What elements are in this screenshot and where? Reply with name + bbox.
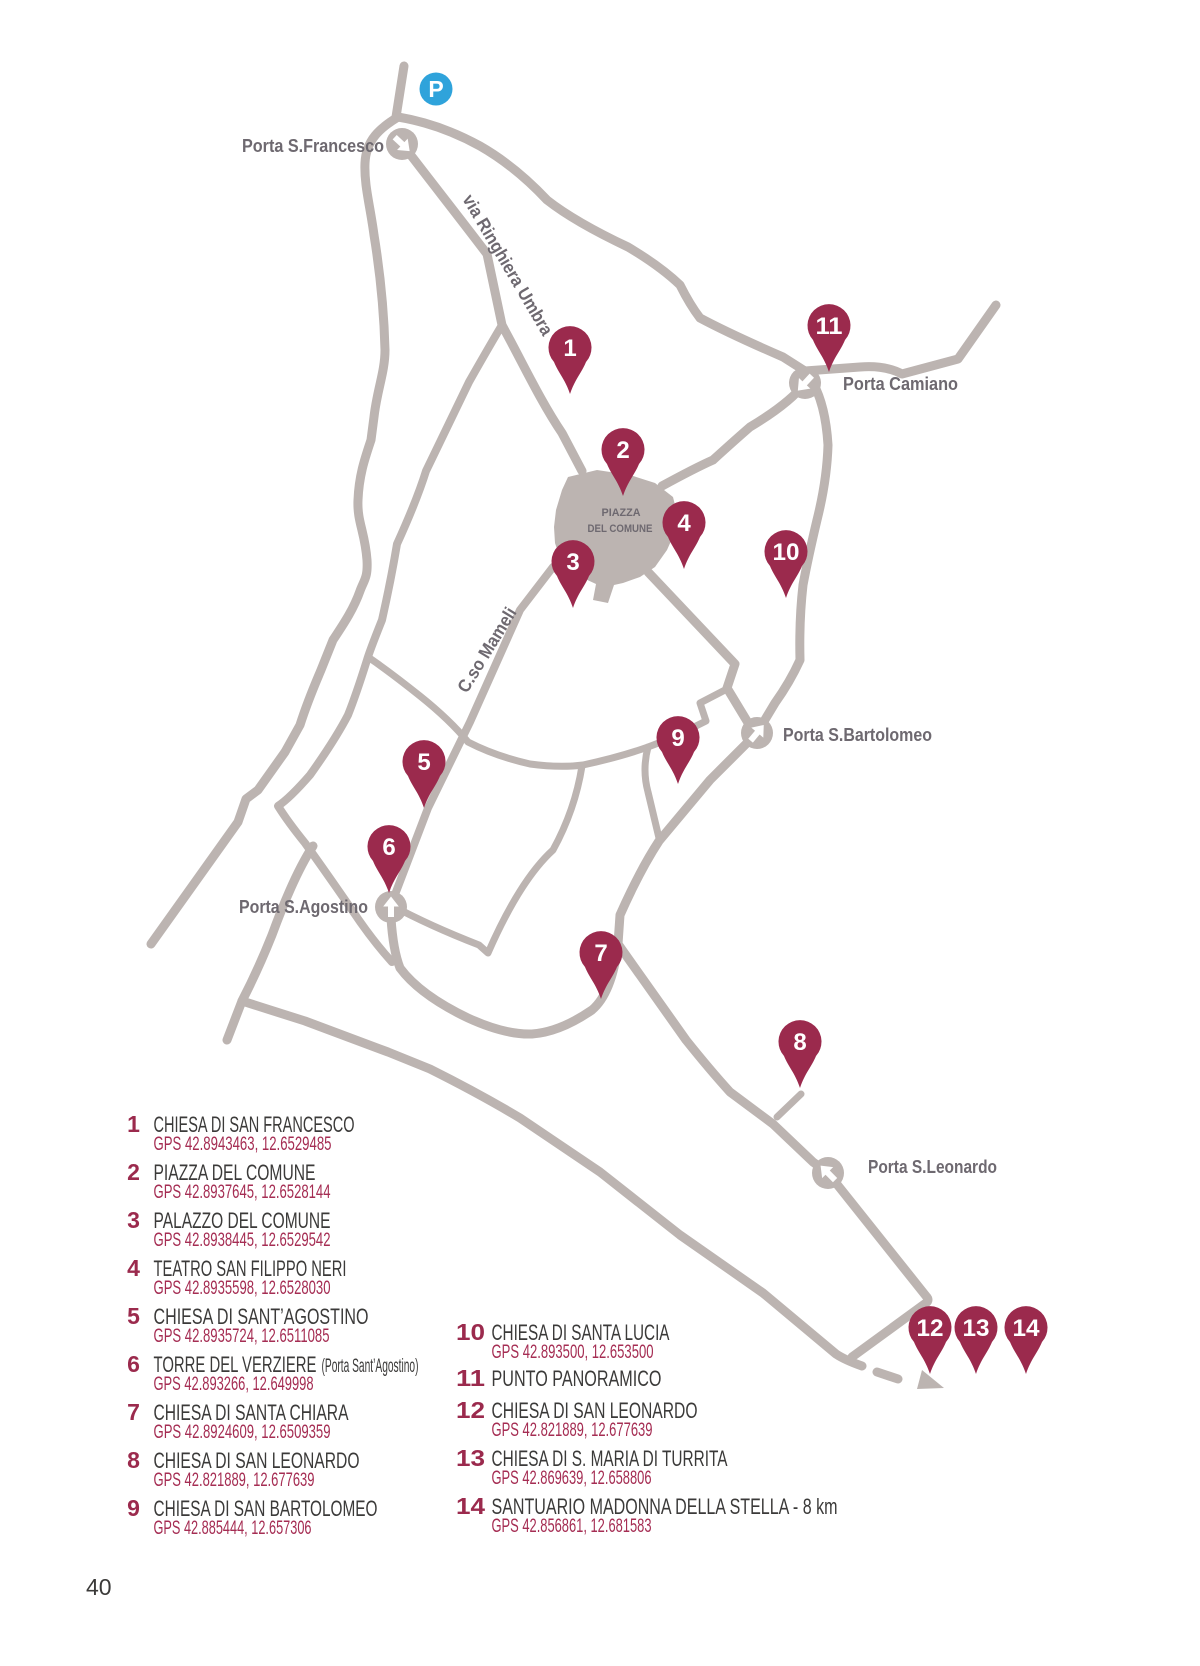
- svg-text:Porta S.Bartolomeo: Porta S.Bartolomeo: [783, 725, 932, 745]
- svg-text:13: 13: [456, 1445, 485, 1471]
- svg-text:40: 40: [86, 1574, 112, 1600]
- svg-text:GPS 42.8935724, 12.6511085: GPS 42.8935724, 12.6511085: [154, 1326, 330, 1347]
- svg-text:GPS 42.869639, 12.658806: GPS 42.869639, 12.658806: [492, 1468, 652, 1489]
- svg-text:8: 8: [793, 1029, 806, 1056]
- svg-text:6: 6: [382, 834, 395, 861]
- svg-text:GPS 42.856861, 12.681583: GPS 42.856861, 12.681583: [492, 1516, 652, 1537]
- svg-text:10: 10: [773, 539, 800, 566]
- svg-text:Porta S.Leonardo: Porta S.Leonardo: [868, 1157, 997, 1177]
- svg-text:11: 11: [816, 313, 843, 340]
- svg-text:GPS 42.893500, 12.653500: GPS 42.893500, 12.653500: [492, 1342, 654, 1363]
- svg-text:1: 1: [563, 335, 576, 362]
- svg-text:PUNTO PANORAMICO: PUNTO PANORAMICO: [492, 1366, 662, 1391]
- svg-text:3: 3: [566, 549, 579, 576]
- svg-text:PIAZZA: PIAZZA: [602, 507, 641, 519]
- svg-text:8: 8: [127, 1447, 140, 1473]
- svg-text:10: 10: [456, 1319, 485, 1345]
- svg-text:GPS 42.8924609, 12.6509359: GPS 42.8924609, 12.6509359: [154, 1422, 331, 1443]
- svg-text:GPS 42.885444, 12.657306: GPS 42.885444, 12.657306: [154, 1518, 312, 1539]
- svg-text:7: 7: [594, 940, 607, 967]
- svg-text:14: 14: [1013, 1315, 1041, 1342]
- svg-text:GPS 42.821889, 12.677639: GPS 42.821889, 12.677639: [492, 1420, 653, 1441]
- svg-text:GPS 42.8943463, 12.6529485: GPS 42.8943463, 12.6529485: [154, 1134, 332, 1155]
- svg-text:GPS 42.8938445, 12.6529542: GPS 42.8938445, 12.6529542: [154, 1230, 331, 1251]
- svg-text:GPS 42.893266, 12.649998: GPS 42.893266, 12.649998: [154, 1374, 314, 1395]
- svg-text:P: P: [428, 76, 443, 102]
- svg-text:13: 13: [963, 1315, 990, 1342]
- svg-text:1: 1: [127, 1111, 140, 1137]
- svg-text:7: 7: [127, 1399, 140, 1425]
- svg-text:Porta Camiano: Porta Camiano: [843, 374, 958, 394]
- svg-text:GPS 42.8937645, 12.6528144: GPS 42.8937645, 12.6528144: [154, 1182, 331, 1203]
- svg-text:Porta S.Francesco: Porta S.Francesco: [242, 136, 384, 156]
- svg-text:6: 6: [127, 1351, 140, 1377]
- svg-text:GPS 42.821889, 12.677639: GPS 42.821889, 12.677639: [154, 1470, 315, 1491]
- svg-text:12: 12: [917, 1315, 944, 1342]
- svg-text:12: 12: [456, 1397, 485, 1423]
- svg-text:2: 2: [616, 437, 629, 464]
- svg-text:GPS 42.8935598, 12.6528030: GPS 42.8935598, 12.6528030: [154, 1278, 331, 1299]
- svg-text:2: 2: [127, 1159, 140, 1185]
- svg-text:9: 9: [127, 1495, 140, 1521]
- svg-text:14: 14: [456, 1493, 485, 1519]
- svg-text:9: 9: [671, 725, 684, 752]
- svg-text:11: 11: [456, 1365, 485, 1391]
- svg-text:Porta S.Agostino: Porta S.Agostino: [239, 897, 368, 917]
- svg-text:4: 4: [677, 510, 691, 537]
- svg-text:3: 3: [127, 1207, 140, 1233]
- svg-text:5: 5: [127, 1303, 140, 1329]
- svg-text:4: 4: [127, 1255, 140, 1281]
- svg-text:DEL COMUNE: DEL COMUNE: [588, 523, 653, 535]
- svg-text:5: 5: [417, 749, 430, 776]
